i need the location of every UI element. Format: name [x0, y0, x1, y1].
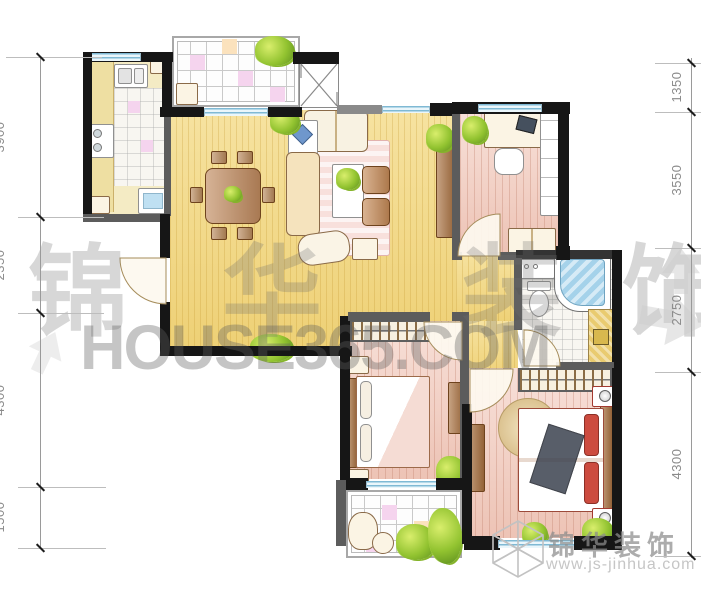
watermark-char-4: 饰: [622, 244, 701, 344]
armchair: [362, 166, 390, 194]
wall-bedroom-left: [340, 316, 350, 482]
balcony-tile-accent: [238, 71, 253, 86]
dining-chair: [190, 187, 203, 203]
entry-door-arc: [120, 258, 166, 304]
cabinet-basin: [593, 329, 609, 345]
shaft-box: [299, 62, 339, 108]
living-north-window: [382, 106, 430, 113]
wall-living-bottom: [160, 346, 352, 356]
watermark-char-1: 锦: [28, 244, 128, 344]
wall-post: [556, 246, 570, 260]
kitchen-tile-accent: [141, 140, 153, 152]
dim-label-right-2: 3550: [670, 158, 684, 202]
kitchen-tile-patch: [114, 88, 168, 186]
dimension-line-left: [40, 57, 41, 548]
wall-kitchen-right: [162, 52, 172, 114]
footer-url-text: www.js-jinhua.com: [546, 556, 695, 574]
balcony-tile-accent: [222, 39, 237, 54]
master-pillow: [584, 414, 599, 456]
wall-kitchen-bottom: [83, 214, 163, 222]
plant: [462, 116, 488, 144]
master-pillow: [584, 462, 599, 504]
floor-plan-canvas: 锦 华 装 饰 HOUSE365.COM 锦华装饰 www.js-jinhua.…: [0, 0, 701, 601]
wall-sbalcony-left: [336, 480, 346, 546]
wall-bath-left: [514, 258, 522, 330]
dining-chair: [262, 187, 275, 203]
kitchen-sink-basin: [134, 68, 144, 84]
bedroom-window: [366, 481, 438, 488]
stove-burner: [93, 143, 102, 152]
dining-chair: [237, 227, 253, 240]
wall-master-left: [462, 404, 472, 544]
wall-kitchen-left: [83, 52, 92, 222]
wall-bath-bottom: [556, 362, 614, 370]
dimension-line-right: [691, 58, 692, 558]
wall-living-left-a: [160, 214, 170, 258]
dim-label-left-2: 2350: [0, 243, 7, 287]
wall-study-right: [558, 102, 569, 258]
balcony-cabinet: [176, 83, 198, 105]
dim-label-left-4: 1500: [0, 495, 7, 539]
bathtub-basin: [560, 259, 605, 306]
plant: [426, 124, 454, 152]
vanity-knob: [533, 264, 538, 269]
bed-pillow: [360, 424, 372, 462]
dim-ext: [18, 487, 106, 488]
bathroom-vanity: [519, 259, 555, 279]
wall-bedroom-top-a: [348, 312, 430, 321]
wall-living-top-b: [268, 107, 302, 117]
watermark-arrow: [20, 324, 71, 379]
dining-chair: [237, 151, 253, 164]
wall-kitchen-living: [164, 114, 171, 216]
wall-shaft-top: [293, 52, 339, 64]
nightstand: [347, 356, 369, 374]
dim-ext: [18, 548, 106, 549]
end-table: [352, 238, 378, 260]
dim-label-left-1: 3900: [0, 115, 7, 159]
living-balcony-window: [204, 108, 268, 116]
vanity-knob: [524, 264, 529, 269]
balcony-tile-accent: [382, 505, 397, 520]
wall-study-left: [452, 114, 460, 254]
balcony-tile-accent: [270, 87, 285, 102]
bed-pillow: [360, 381, 372, 419]
dim-label-right-4: 4300: [670, 442, 684, 486]
dim-label-right-1: 1350: [670, 65, 684, 109]
stove-burner: [93, 129, 102, 138]
wall-master-right: [612, 368, 622, 550]
dim-label-right-3: 2750: [670, 288, 684, 332]
kitchen-sink-basin: [118, 68, 132, 84]
wall-master-bottom-a: [464, 536, 500, 550]
armchair: [362, 198, 390, 226]
dim-ext: [18, 313, 104, 314]
sofa-left: [286, 152, 320, 236]
nightstand-lamp: [599, 390, 611, 402]
plant: [255, 36, 295, 66]
wardrobe-hangers: [350, 320, 430, 342]
balcony-tile-accent: [190, 55, 205, 70]
kitchen-tile-accent: [128, 101, 140, 113]
balcony-table: [372, 532, 394, 554]
wall-living-left-b: [160, 302, 170, 350]
wall-bath-right: [612, 250, 622, 372]
wall-living-top-a: [160, 107, 204, 117]
dining-chair: [211, 227, 227, 240]
wall-living-top-c: [337, 105, 382, 114]
study-window: [478, 104, 542, 112]
dining-chair: [211, 151, 227, 164]
coffee-table-plant: [336, 168, 360, 190]
toilet-bowl: [529, 290, 549, 317]
dim-ext: [18, 217, 104, 218]
dining-centerpiece: [224, 186, 242, 202]
wall-study-bottom-a: [452, 252, 462, 260]
refrigerator-front: [143, 193, 163, 209]
desk-chair: [494, 148, 524, 175]
dim-ext: [6, 57, 102, 58]
dim-label-left-3: 4300: [0, 378, 7, 422]
